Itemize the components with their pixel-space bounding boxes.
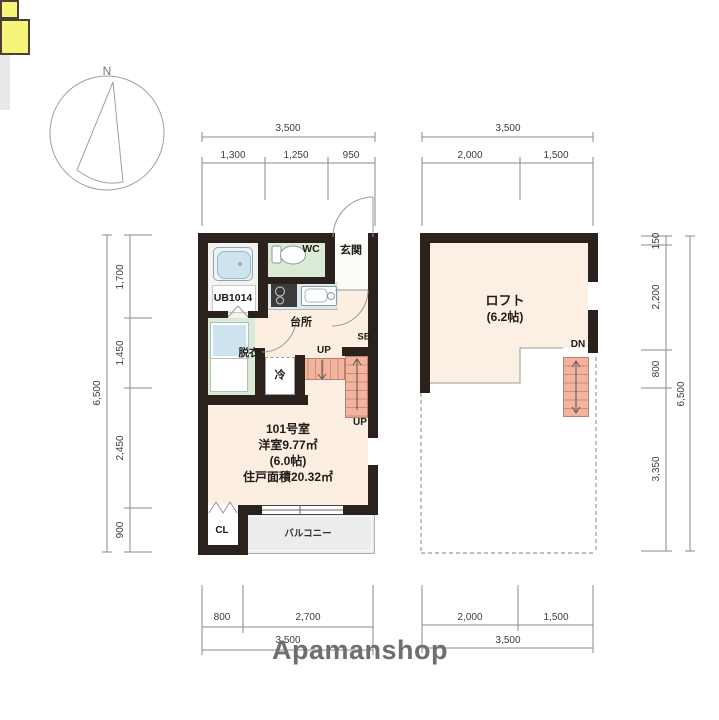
dim-label: 2,450 [116, 435, 126, 460]
dim-label: 3,500 [275, 124, 300, 134]
window [0, 82, 10, 110]
dim-label: 6,500 [677, 381, 687, 406]
wall [342, 347, 378, 356]
wall [588, 310, 598, 353]
wall [420, 233, 598, 243]
bathtub-inner [217, 251, 251, 279]
down-label: DN [571, 340, 585, 350]
north-label: N [103, 65, 112, 77]
dim-label: 2,000 [457, 613, 482, 623]
balcony-sliding-window [262, 505, 343, 515]
dim-label: 3,500 [495, 636, 520, 646]
stairs-down-flight [563, 357, 589, 417]
wall [198, 395, 308, 405]
dim-label: 2,000 [457, 151, 482, 161]
dim-label: 800 [652, 361, 662, 378]
wall [295, 355, 305, 405]
wall [325, 243, 335, 284]
shoe-box-label: SB [357, 332, 370, 342]
room-tatami: (6.0帖) [208, 453, 368, 469]
loft-label-block: ロフト (6.2帖) [425, 293, 585, 325]
wall [258, 243, 268, 318]
wall [343, 505, 378, 515]
dim-label: 1,700 [116, 264, 126, 289]
vanity-space [210, 358, 248, 392]
dims-top-1f [202, 132, 375, 226]
fridge-label: 冷 [275, 371, 286, 382]
dim-label: 900 [116, 522, 126, 539]
loft-size-label: (6.2帖) [425, 309, 585, 325]
stairs-upper-flight [345, 356, 368, 418]
balcony-label: バルコニー [284, 529, 331, 539]
dim-label: 3,500 [495, 124, 520, 134]
room-number: 101号室 [208, 421, 368, 437]
wall [208, 311, 228, 318]
room-info-block: 101号室 洋室9.77㎡ (6.0帖) 住戸面積20.32㎡ [208, 421, 368, 485]
wc-label: WC [302, 244, 320, 255]
wall [238, 505, 248, 555]
dim-label: 6,500 [93, 380, 103, 405]
dim-label: 1,500 [543, 613, 568, 623]
dim-label: 150 [652, 233, 662, 250]
entrance-door-arc [333, 197, 373, 237]
dims-top-2f [422, 132, 593, 226]
dim-label: 2,200 [652, 284, 662, 309]
bathtub [213, 247, 253, 281]
up-label-1: UP [317, 346, 331, 356]
unit-bath-label: UB1014 [214, 293, 253, 304]
dim-label: 950 [343, 151, 360, 161]
unit-total-area: 住戸面積20.32㎡ [208, 469, 368, 485]
window [0, 55, 10, 82]
dim-label: 1,500 [543, 151, 568, 161]
stove [271, 284, 297, 307]
dim-label: 1,250 [283, 151, 308, 161]
entrance-label: 玄関 [340, 246, 362, 257]
shoe-box [0, 0, 19, 19]
dimension-lines [102, 132, 695, 655]
wall [268, 277, 325, 284]
dim-label: 1,450 [116, 340, 126, 365]
wall [198, 233, 335, 243]
compass-needle [77, 82, 123, 183]
apamanshop-logo: Apamanshop [240, 632, 480, 668]
dim-label: 1,300 [220, 151, 245, 161]
closet-label: CL [215, 526, 228, 536]
room-area: 洋室9.77㎡ [208, 437, 368, 453]
wall [588, 233, 598, 282]
floorplan-canvas: N UB1014 WC 玄関 台所 脱衣 冷 SB UP UP CL バルコニー… [0, 0, 719, 720]
compass [50, 76, 164, 190]
stairs-lower-flight [300, 358, 345, 380]
closet-box [0, 19, 30, 55]
wall [248, 311, 258, 318]
wall [198, 233, 208, 555]
kitchen-sink [301, 286, 337, 306]
dressing-label: 脱衣 [239, 348, 260, 359]
dim-label: 3,350 [652, 456, 662, 481]
dim-label: 2,700 [295, 613, 320, 623]
loft-label: ロフト [425, 293, 585, 309]
dims-left-1f [102, 235, 152, 552]
kitchen-label: 台所 [290, 318, 312, 329]
dim-label: 800 [214, 613, 231, 623]
compass-circle [50, 76, 164, 190]
